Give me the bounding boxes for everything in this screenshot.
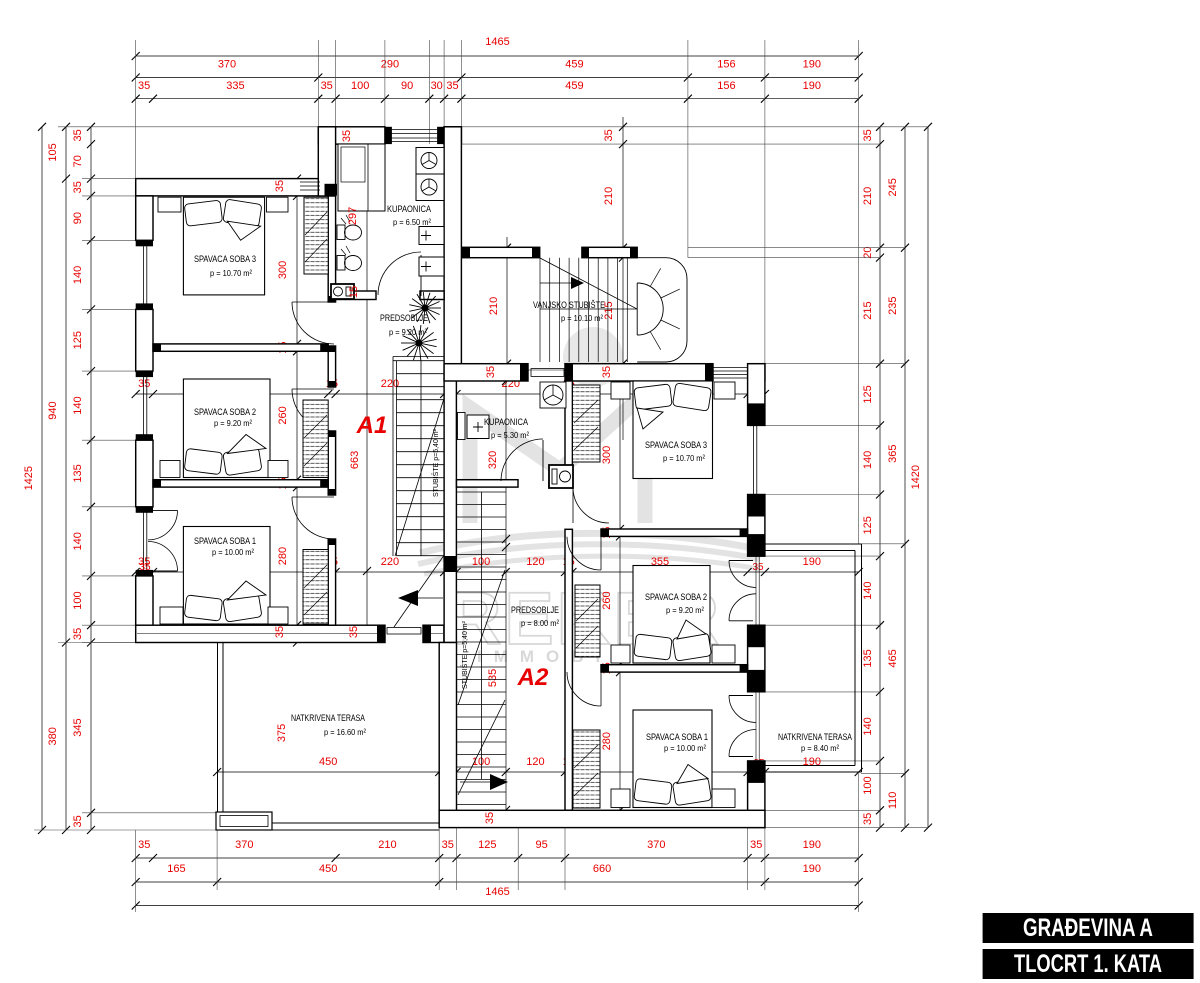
svg-text:345: 345 [72,718,84,736]
svg-text:p = 10.70 m²: p = 10.70 m² [210,268,252,278]
svg-text:100: 100 [351,80,369,92]
svg-text:280: 280 [277,547,289,565]
svg-text:300: 300 [601,446,613,464]
svg-text:p = 9.20 m²: p = 9.20 m² [214,418,252,428]
svg-text:459: 459 [565,80,583,92]
svg-text:140: 140 [862,451,874,469]
svg-text:235: 235 [887,297,899,315]
svg-text:35: 35 [138,839,150,851]
svg-text:320: 320 [487,451,499,469]
svg-text:35: 35 [72,181,84,193]
svg-text:20: 20 [862,246,874,258]
svg-text:125: 125 [72,331,84,349]
svg-text:140: 140 [862,717,874,735]
svg-text:p = 8.00 m²: p = 8.00 m² [521,618,559,628]
svg-text:NATKRIVENA TERASA: NATKRIVENA TERASA [291,713,365,724]
svg-text:NATKRIVENA TERASA: NATKRIVENA TERASA [778,732,852,743]
svg-text:35: 35 [446,80,458,92]
svg-text:1465: 1465 [485,36,509,48]
svg-text:190: 190 [803,556,821,568]
svg-text:SPAVACA SOBA 1: SPAVACA SOBA 1 [646,732,708,743]
svg-text:290: 290 [381,59,399,71]
svg-text:35: 35 [484,812,496,824]
svg-text:300: 300 [277,261,289,279]
svg-text:190: 190 [803,839,821,851]
svg-text:297: 297 [347,207,359,225]
svg-text:125: 125 [478,839,496,851]
svg-text:190: 190 [803,80,821,92]
svg-text:220: 220 [381,556,399,568]
svg-text:120: 120 [526,556,544,568]
svg-text:p = 9.20 m²: p = 9.20 m² [666,605,704,615]
svg-text:105: 105 [47,143,59,161]
svg-text:35: 35 [485,366,497,378]
svg-text:190: 190 [803,59,821,71]
svg-text:140: 140 [72,396,84,414]
svg-text:p = 10.00 m²: p = 10.00 m² [212,547,254,557]
svg-text:15: 15 [348,286,360,298]
svg-text:1420: 1420 [910,465,922,489]
svg-text:1425: 1425 [23,466,35,490]
svg-text:335: 335 [226,80,244,92]
svg-text:SPAVACA SOBA 2: SPAVACA SOBA 2 [194,407,256,418]
svg-text:35: 35 [601,366,613,378]
svg-text:120: 120 [526,756,544,768]
svg-text:380: 380 [47,727,59,745]
svg-text:210: 210 [862,187,874,205]
svg-text:35: 35 [341,130,353,142]
svg-text:35: 35 [348,626,360,638]
svg-text:450: 450 [319,756,337,768]
svg-text:459: 459 [565,59,583,71]
svg-text:35: 35 [752,562,764,573]
svg-text:TLOCRT 1. KATA: TLOCRT 1. KATA [1014,950,1162,978]
svg-text:245: 245 [887,178,899,196]
svg-text:35: 35 [72,129,84,141]
svg-text:p = 10.10 m²: p = 10.10 m² [561,313,603,323]
svg-text:35: 35 [442,839,454,851]
svg-text:663: 663 [349,451,361,469]
svg-text:370: 370 [647,839,665,851]
svg-text:210: 210 [378,839,396,851]
svg-text:940: 940 [47,401,59,419]
svg-text:PREDSOBLJE: PREDSOBLJE [511,605,559,616]
svg-text:465: 465 [887,649,899,667]
svg-text:35: 35 [862,813,874,825]
svg-text:35: 35 [138,80,150,92]
svg-text:35: 35 [139,562,151,573]
svg-text:110: 110 [887,792,899,810]
svg-text:215: 215 [862,301,874,319]
svg-text:35: 35 [274,180,286,192]
svg-text:90: 90 [72,212,84,224]
svg-text:70: 70 [72,155,84,167]
svg-text:KUPAONICA: KUPAONICA [387,204,432,215]
svg-text:280: 280 [601,732,613,750]
svg-text:90: 90 [401,80,413,92]
svg-text:125: 125 [862,385,874,403]
svg-text:375: 375 [276,724,288,742]
svg-text:SPAVACA SOBA 1: SPAVACA SOBA 1 [194,536,256,547]
svg-text:30: 30 [431,80,443,92]
svg-text:KUPAONICA: KUPAONICA [484,417,529,428]
svg-text:370: 370 [218,59,236,71]
svg-text:35: 35 [603,129,615,141]
svg-text:210: 210 [603,187,615,205]
svg-text:SPAVACA SOBA 3: SPAVACA SOBA 3 [645,440,707,451]
svg-text:190: 190 [803,756,821,768]
svg-text:156: 156 [717,59,735,71]
svg-text:SPAVACA SOBA 2: SPAVACA SOBA 2 [645,592,707,603]
svg-text:135: 135 [72,464,84,482]
svg-text:35: 35 [72,628,84,640]
svg-text:35: 35 [321,80,333,92]
svg-text:35: 35 [862,129,874,141]
svg-text:370: 370 [235,839,253,851]
svg-text:PREDSOBLJE: PREDSOBLJE [380,313,428,324]
svg-text:165: 165 [167,863,185,875]
svg-text:1465: 1465 [485,886,509,898]
svg-text:35: 35 [274,626,286,638]
svg-text:260: 260 [601,591,613,609]
svg-text:GRAĐEVINA A: GRAĐEVINA A [1023,914,1153,942]
svg-text:p = 10.70 m²: p = 10.70 m² [663,453,705,463]
svg-text:156: 156 [717,80,735,92]
svg-text:365: 365 [887,445,899,463]
svg-text:p = 8.40 m²: p = 8.40 m² [801,743,839,753]
svg-text:135: 135 [862,649,874,667]
svg-text:VANJSKO STUBIŠTE: VANJSKO STUBIŠTE [533,300,605,311]
svg-text:535: 535 [487,669,499,687]
svg-text:35: 35 [750,839,762,851]
svg-text:140: 140 [862,582,874,600]
svg-text:140: 140 [72,532,84,550]
svg-text:STUBIŠTE p=5,40 m²: STUBIŠTE p=5,40 m² [431,428,440,497]
svg-text:A2: A2 [517,664,549,691]
svg-text:STUBIŠTE p=5,40 m²: STUBIŠTE p=5,40 m² [460,620,469,689]
svg-text:p = 16.60 m²: p = 16.60 m² [324,727,366,737]
svg-text:125: 125 [862,516,874,534]
svg-text:95: 95 [535,839,547,851]
svg-text:A1: A1 [356,412,388,439]
svg-text:35: 35 [138,378,150,390]
svg-text:660: 660 [593,863,611,875]
svg-text:260: 260 [277,406,289,424]
svg-text:190: 190 [803,863,821,875]
svg-text:100: 100 [72,591,84,609]
svg-text:p = 10.00 m²: p = 10.00 m² [664,743,706,753]
svg-text:35: 35 [72,815,84,827]
svg-text:210: 210 [488,297,500,315]
svg-text:p = 5.30 m²: p = 5.30 m² [491,430,529,440]
svg-text:140: 140 [72,266,84,284]
svg-text:SPAVACA SOBA 3: SPAVACA SOBA 3 [194,254,256,265]
svg-text:450: 450 [319,863,337,875]
svg-text:p = 6.50 m²: p = 6.50 m² [393,217,431,227]
svg-text:p = 9.20 m²: p = 9.20 m² [389,327,427,337]
svg-text:100: 100 [862,776,874,794]
